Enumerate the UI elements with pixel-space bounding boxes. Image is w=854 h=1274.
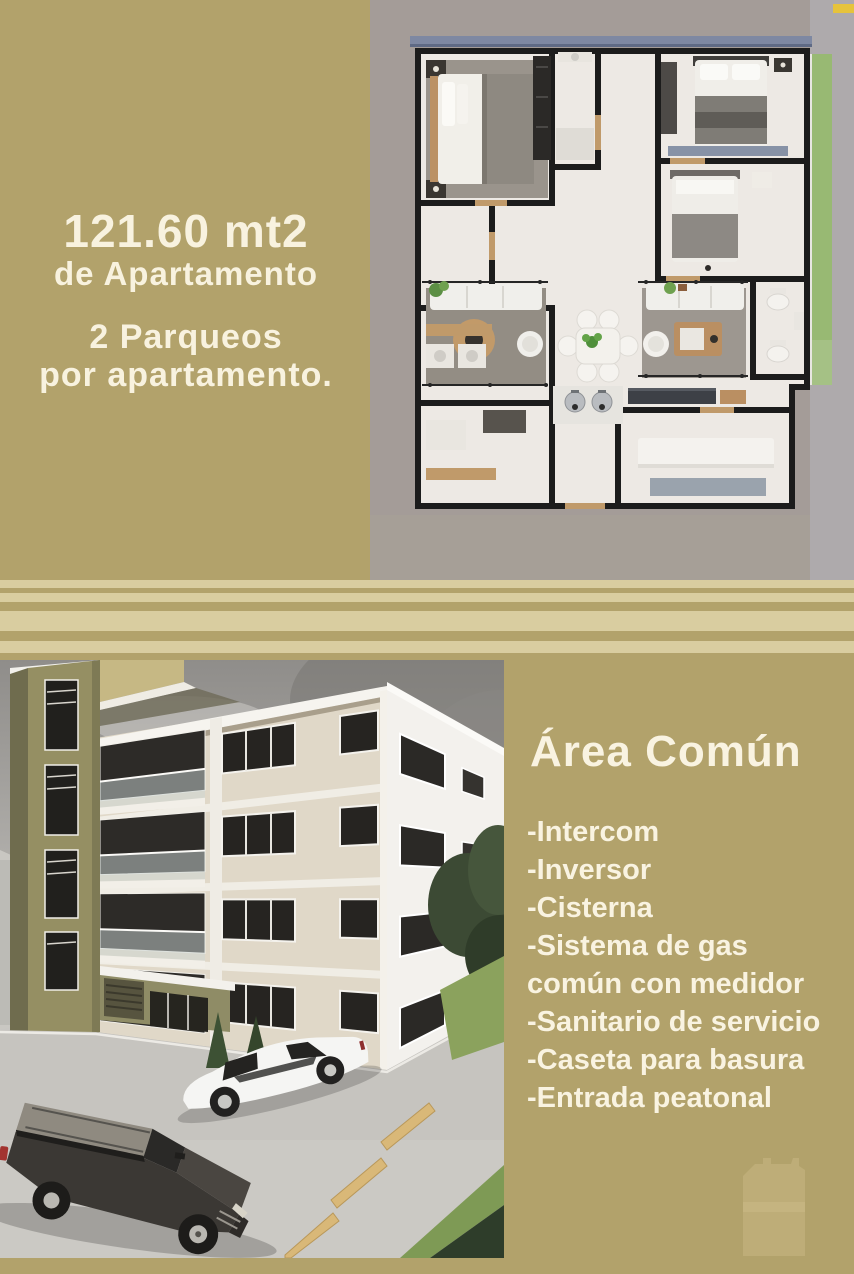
divider-stripes xyxy=(0,580,854,660)
yellow-corner-tag xyxy=(833,4,854,13)
parking-line-1: 2 Parqueos xyxy=(0,318,372,356)
stripe xyxy=(0,611,854,631)
amenity-item: -Entrada peatonal xyxy=(527,1079,854,1117)
floor-plan-panel xyxy=(370,0,854,580)
amenity-item: común con medidor xyxy=(527,965,854,1003)
stripe xyxy=(0,580,854,588)
stripe xyxy=(0,593,854,602)
apartment-size-caption: de Apartamento xyxy=(0,257,372,292)
building-render-panel xyxy=(0,660,504,1258)
amenity-item: -Intercom xyxy=(527,813,854,851)
building-render-image xyxy=(0,660,504,1258)
amenity-item: -Caseta para basura xyxy=(527,1041,854,1079)
family-room xyxy=(638,280,748,378)
flyer-page: 121.60 mt2 de Apartamento 2 Parqueos por… xyxy=(0,0,854,1274)
parking-line-2: por apartamento. xyxy=(0,356,372,394)
watermark-logo xyxy=(735,1156,815,1258)
amenities-title: Área Común xyxy=(530,727,854,777)
parking-text: 2 Parqueos por apartamento. xyxy=(0,318,372,394)
floor-plan-image xyxy=(370,0,854,580)
amenity-item: -Inversor xyxy=(527,851,854,889)
garden-strip xyxy=(808,54,832,385)
headline-block: 121.60 mt2 de Apartamento 2 Parqueos por… xyxy=(0,208,372,394)
wardrobe xyxy=(533,56,551,160)
kitchen-dining-room xyxy=(638,438,774,496)
stripe xyxy=(0,641,854,653)
apartment-size-text: 121.60 mt2 xyxy=(0,208,372,254)
amenity-item: -Cisterna xyxy=(527,889,854,927)
amenity-item: -Sistema de gas xyxy=(527,927,854,965)
stair-tower xyxy=(10,660,100,1044)
amenity-item: -Sanitario de servicio xyxy=(527,1003,854,1041)
master-bedroom xyxy=(426,56,551,198)
amenities-list: -Intercom-Inversor-Cisterna-Sistema de g… xyxy=(527,813,854,1117)
